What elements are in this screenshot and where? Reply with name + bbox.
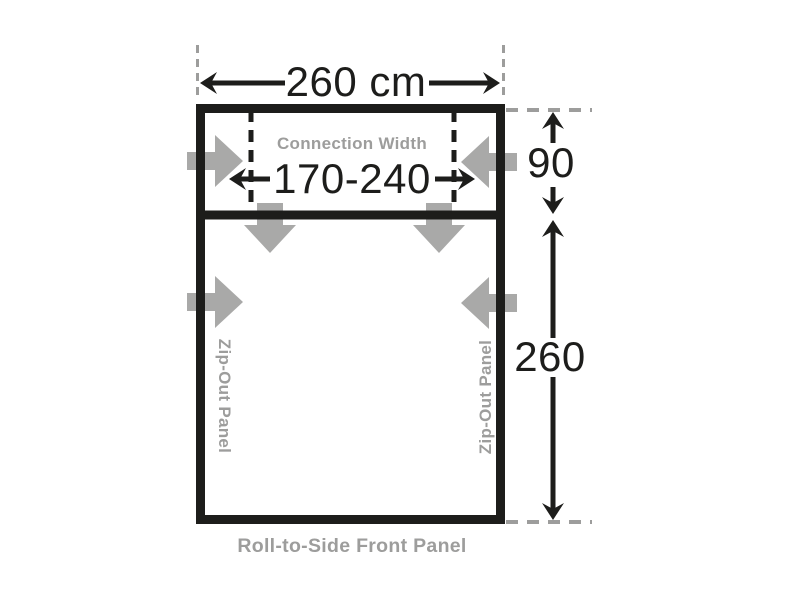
arrow-left-icon (461, 277, 517, 329)
arrow-right-icon (187, 276, 243, 328)
left-zip-out-panel-label: Zip-Out Panel (215, 339, 234, 453)
front-panel-label: Roll-to-Side Front Panel (237, 535, 466, 557)
connection-width-value: 170-240 (273, 155, 431, 202)
connection-width-label: Connection Width (277, 134, 427, 153)
top-section-depth-value: 90 (527, 139, 575, 186)
total-width-value: 260 cm (286, 58, 427, 105)
depth-dimensions: 90 260 (514, 112, 586, 520)
total-width-dimension: 260 cm (200, 58, 500, 105)
main-section-depth-value: 260 (514, 333, 586, 380)
extension-lines (198, 45, 593, 522)
awning-dimension-diagram: 260 cm Connection Width 170-240 90 260 Z… (0, 0, 800, 600)
right-zip-out-panel-label: Zip-Out Panel (476, 340, 495, 454)
connection-width-dimension: Connection Width 170-240 (229, 134, 475, 202)
